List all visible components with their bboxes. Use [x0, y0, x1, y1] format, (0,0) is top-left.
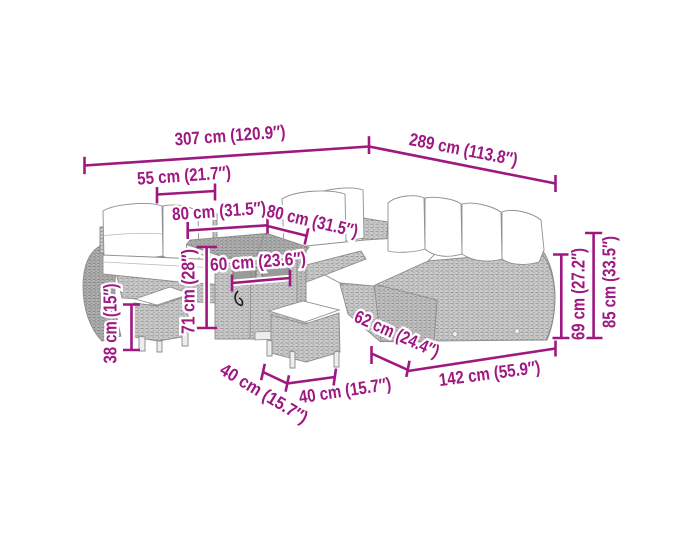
svg-text:85 cm (33.5″): 85 cm (33.5″) [600, 236, 620, 328]
svg-text:69 cm (27.2″): 69 cm (27.2″) [569, 248, 589, 340]
svg-text:71 cm (28″): 71 cm (28″) [179, 249, 199, 334]
svg-text:38 cm (15″): 38 cm (15″) [101, 283, 121, 363]
